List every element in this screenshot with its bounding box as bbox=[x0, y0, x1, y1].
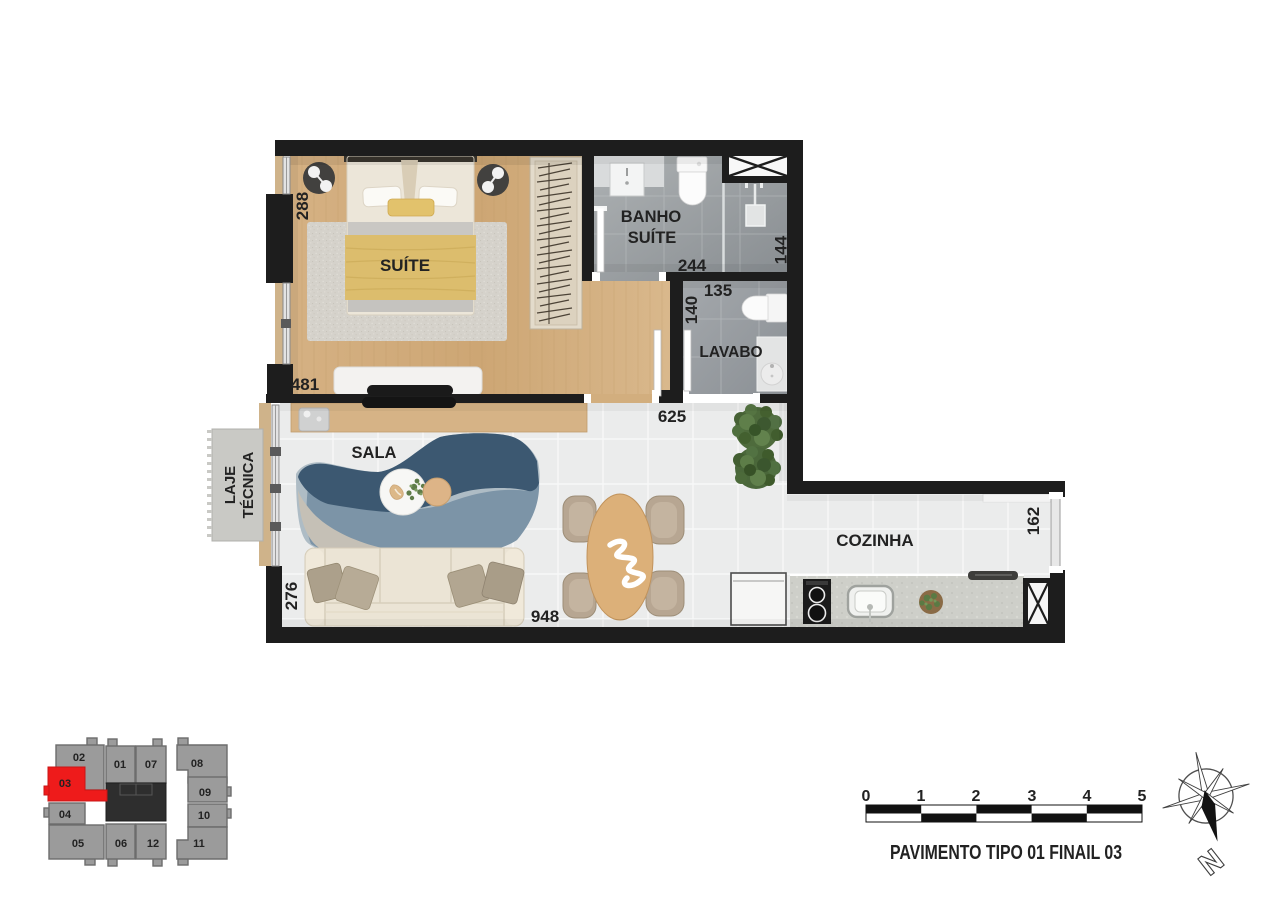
svg-text:01: 01 bbox=[114, 759, 126, 771]
svg-text:LAVABO: LAVABO bbox=[699, 344, 762, 361]
svg-text:09: 09 bbox=[199, 787, 211, 799]
svg-text:4: 4 bbox=[1083, 788, 1092, 805]
svg-text:SUÍTE: SUÍTE bbox=[380, 256, 430, 275]
svg-text:COZINHA: COZINHA bbox=[836, 531, 913, 550]
svg-text:12: 12 bbox=[147, 838, 159, 850]
svg-text:288: 288 bbox=[293, 192, 312, 220]
svg-text:02: 02 bbox=[73, 752, 85, 764]
svg-text:03: 03 bbox=[59, 778, 71, 790]
svg-text:3: 3 bbox=[1028, 788, 1037, 805]
svg-text:276: 276 bbox=[282, 582, 301, 610]
svg-text:11: 11 bbox=[193, 838, 205, 850]
svg-text:SUÍTE: SUÍTE bbox=[628, 228, 677, 247]
svg-text:2: 2 bbox=[972, 788, 981, 805]
svg-text:BANHO: BANHO bbox=[621, 208, 682, 226]
svg-text:06: 06 bbox=[115, 838, 127, 850]
svg-text:04: 04 bbox=[59, 809, 72, 821]
svg-text:244: 244 bbox=[678, 256, 707, 275]
svg-text:10: 10 bbox=[198, 810, 210, 822]
svg-text:948: 948 bbox=[531, 607, 559, 626]
svg-text:SALA: SALA bbox=[352, 444, 397, 462]
svg-text:1: 1 bbox=[917, 788, 926, 805]
svg-text:05: 05 bbox=[72, 838, 84, 850]
svg-text:625: 625 bbox=[658, 407, 686, 426]
svg-text:07: 07 bbox=[145, 759, 157, 771]
svg-text:0: 0 bbox=[862, 788, 871, 805]
svg-text:08: 08 bbox=[191, 758, 203, 770]
svg-text:PAVIMENTO TIPO 01 FINAIL 03: PAVIMENTO TIPO 01 FINAIL 03 bbox=[890, 842, 1122, 864]
svg-text:135: 135 bbox=[704, 281, 732, 300]
svg-text:144: 144 bbox=[772, 235, 791, 264]
svg-text:5: 5 bbox=[1138, 788, 1147, 805]
svg-text:162: 162 bbox=[1024, 507, 1043, 535]
svg-text:481: 481 bbox=[291, 375, 319, 394]
svg-text:140: 140 bbox=[682, 296, 701, 324]
